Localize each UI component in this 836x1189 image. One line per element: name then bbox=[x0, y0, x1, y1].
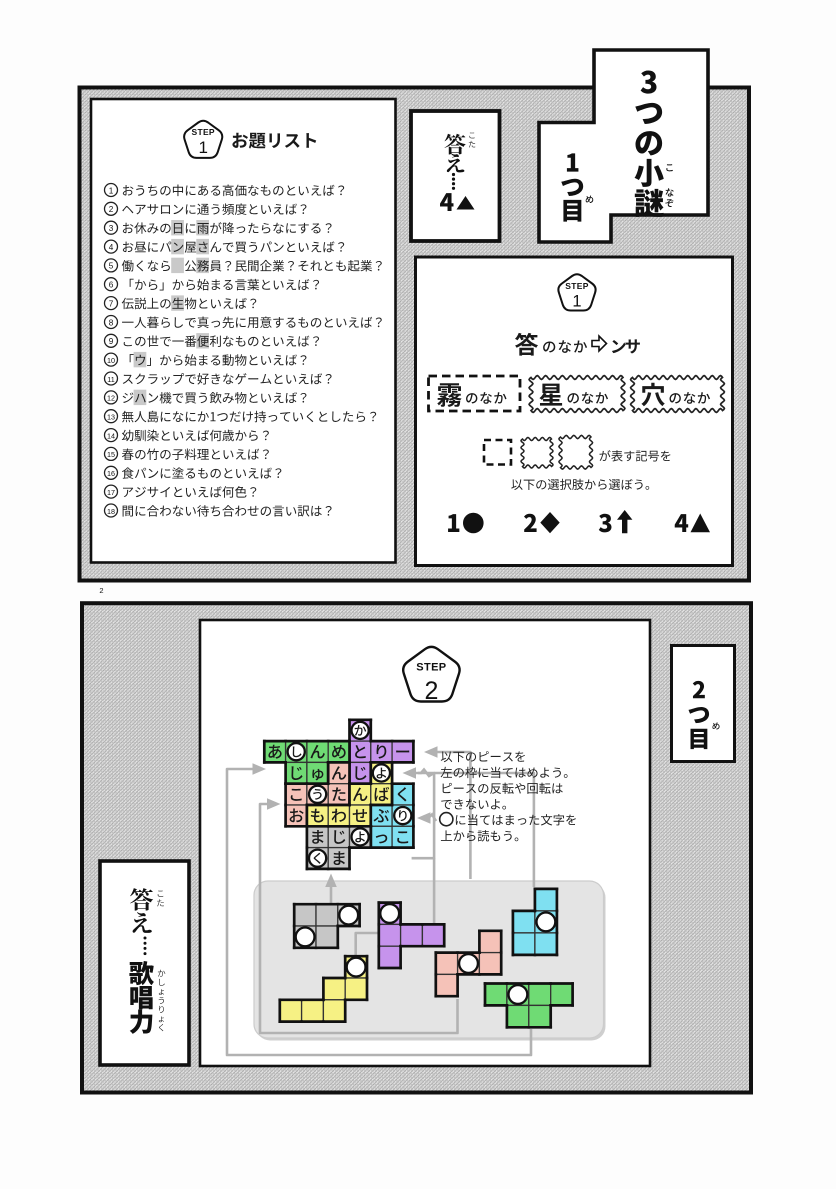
svg-text:9: 9 bbox=[109, 337, 114, 346]
svg-text:STEP: STEP bbox=[191, 127, 214, 137]
svg-text:12: 12 bbox=[107, 394, 115, 403]
svg-text:1: 1 bbox=[109, 186, 114, 195]
svg-text:2: 2 bbox=[424, 677, 438, 705]
svg-text:11: 11 bbox=[107, 375, 114, 384]
svg-text:16: 16 bbox=[107, 469, 115, 478]
svg-text:13: 13 bbox=[107, 413, 115, 422]
svg-text:10: 10 bbox=[107, 356, 115, 365]
svg-text:STEP: STEP bbox=[565, 281, 588, 291]
svg-text:18: 18 bbox=[107, 507, 115, 516]
svg-text:2: 2 bbox=[109, 205, 114, 214]
svg-text:3: 3 bbox=[109, 224, 114, 233]
svg-text:6: 6 bbox=[109, 281, 114, 290]
svg-text:17: 17 bbox=[107, 488, 115, 497]
svg-text:1: 1 bbox=[572, 293, 581, 311]
svg-text:STEP: STEP bbox=[416, 662, 446, 674]
svg-text:2: 2 bbox=[99, 586, 103, 595]
svg-text:14: 14 bbox=[107, 431, 115, 440]
svg-text:5: 5 bbox=[109, 262, 114, 271]
svg-text:1: 1 bbox=[198, 138, 207, 157]
svg-text:4: 4 bbox=[109, 243, 114, 252]
svg-text:8: 8 bbox=[109, 318, 114, 327]
svg-text:15: 15 bbox=[107, 450, 115, 459]
svg-text:7: 7 bbox=[109, 299, 114, 308]
